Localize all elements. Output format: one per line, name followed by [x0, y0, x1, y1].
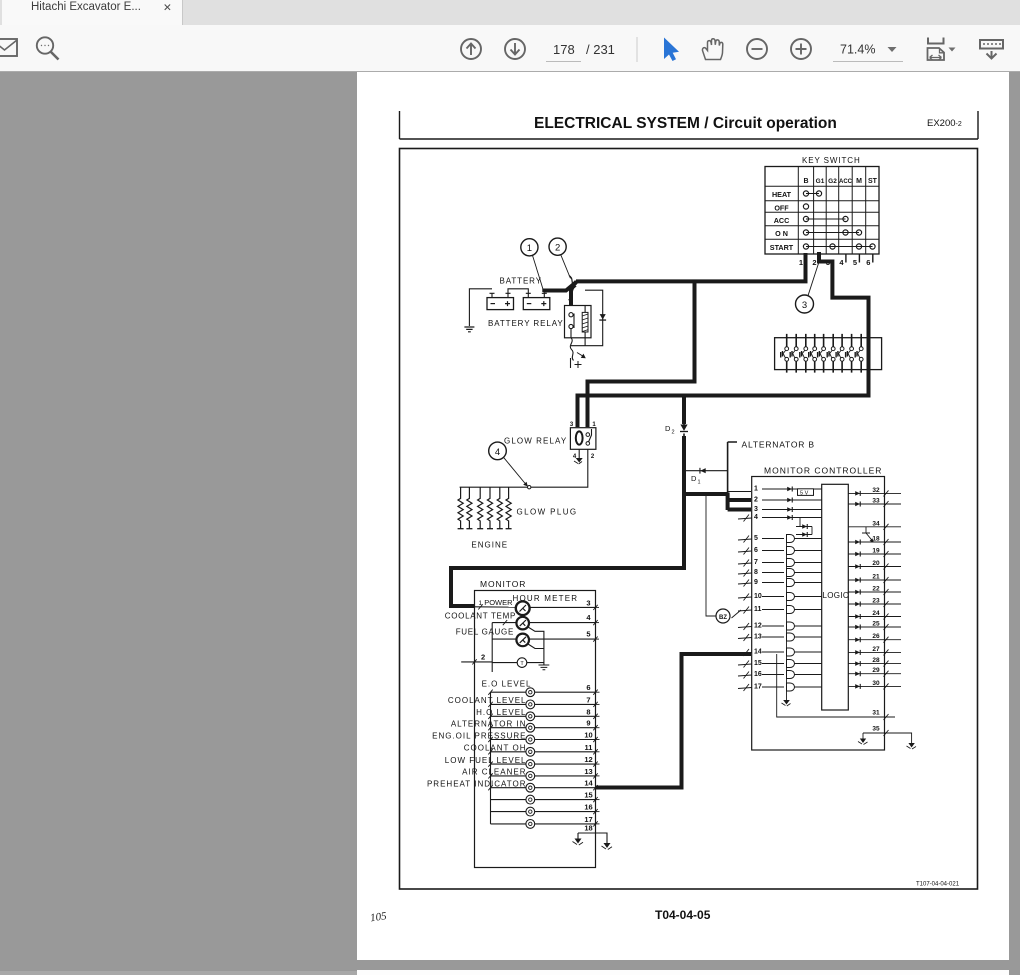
- svg-text:19: 19: [872, 548, 880, 555]
- svg-text:17: 17: [754, 684, 762, 691]
- svg-text:/ 231: / 231: [586, 42, 615, 57]
- svg-text:3: 3: [586, 598, 590, 607]
- svg-text:2: 2: [812, 258, 816, 267]
- svg-text:3: 3: [802, 300, 807, 311]
- svg-text:34: 34: [872, 520, 880, 527]
- svg-text:1 POWER: 1 POWER: [479, 598, 514, 607]
- svg-text:BATTERY: BATTERY: [500, 277, 542, 286]
- svg-text:D: D: [665, 424, 671, 433]
- svg-text:ST: ST: [868, 178, 878, 185]
- svg-text:33: 33: [872, 498, 880, 505]
- svg-text:1: 1: [754, 486, 758, 493]
- svg-text:4: 4: [754, 514, 758, 521]
- svg-text:ACC: ACC: [839, 179, 853, 185]
- svg-text:T: T: [520, 661, 524, 667]
- svg-text:18: 18: [872, 536, 880, 543]
- svg-text:LOW FUEL LEVEL: LOW FUEL LEVEL: [445, 756, 527, 765]
- svg-text:G2: G2: [828, 178, 837, 185]
- svg-text:25: 25: [872, 621, 880, 628]
- svg-text:PREHEAT INDICATOR: PREHEAT INDICATOR: [427, 780, 527, 789]
- svg-text:EX200-2: EX200-2: [927, 118, 962, 129]
- svg-text:12: 12: [754, 623, 762, 630]
- svg-text:COOLANT LEVEL: COOLANT LEVEL: [448, 696, 527, 705]
- svg-text:6: 6: [754, 547, 758, 554]
- svg-text:18: 18: [584, 824, 592, 833]
- svg-text:D: D: [691, 474, 697, 483]
- svg-text:START: START: [770, 243, 794, 252]
- svg-text:9: 9: [754, 579, 758, 586]
- svg-text:BATTERY RELAY: BATTERY RELAY: [488, 319, 564, 328]
- svg-text:T107-04-04-021: T107-04-04-021: [916, 882, 960, 888]
- svg-text:ALTERNATOR B: ALTERNATOR B: [742, 440, 815, 450]
- svg-text:7: 7: [754, 559, 758, 566]
- svg-text:24: 24: [872, 610, 880, 617]
- svg-text:8: 8: [754, 569, 758, 576]
- svg-text:16: 16: [584, 803, 592, 812]
- svg-text:O N: O N: [775, 229, 788, 238]
- svg-text:1: 1: [527, 243, 532, 254]
- svg-text:10: 10: [584, 731, 592, 740]
- svg-text:14: 14: [584, 779, 593, 788]
- svg-text:MONITOR: MONITOR: [480, 579, 526, 589]
- svg-text:6: 6: [586, 683, 590, 692]
- svg-text:OFF: OFF: [774, 204, 789, 213]
- svg-text:ENGINE: ENGINE: [471, 541, 508, 550]
- svg-text:6: 6: [866, 258, 870, 267]
- svg-text:ACC: ACC: [774, 216, 790, 225]
- svg-text:15: 15: [584, 791, 592, 800]
- svg-text:ELECTRICAL SYSTEM / Circuit op: ELECTRICAL SYSTEM / Circuit operation: [534, 115, 837, 132]
- svg-text:FUEL GAUGE: FUEL GAUGE: [456, 628, 514, 637]
- svg-text:27: 27: [872, 646, 880, 653]
- svg-text:4: 4: [573, 454, 577, 460]
- svg-text:BZ: BZ: [719, 615, 727, 621]
- svg-text:11: 11: [754, 606, 762, 613]
- svg-text:ENG.OIL PRESSURE: ENG.OIL PRESSURE: [432, 731, 526, 740]
- svg-text:M: M: [856, 178, 862, 185]
- svg-text:AIR CLEANER: AIR CLEANER: [462, 768, 526, 777]
- svg-text:1: 1: [799, 258, 803, 267]
- svg-text:4: 4: [839, 258, 844, 267]
- svg-text:22: 22: [872, 586, 880, 593]
- svg-text:E.O LEVEL: E.O LEVEL: [482, 680, 532, 689]
- svg-text:28: 28: [872, 657, 880, 664]
- svg-text:29: 29: [872, 667, 880, 674]
- svg-text:HEAT: HEAT: [772, 190, 792, 199]
- svg-text:2: 2: [754, 497, 758, 504]
- svg-text:21: 21: [872, 574, 880, 581]
- svg-text:KEY SWITCH: KEY SWITCH: [802, 156, 861, 165]
- svg-text:4: 4: [495, 447, 500, 458]
- svg-text:26: 26: [872, 633, 880, 640]
- svg-text:13: 13: [584, 767, 592, 776]
- svg-text:COOLANT TEMP: COOLANT TEMP: [445, 612, 516, 621]
- svg-text:32: 32: [872, 487, 880, 494]
- svg-text:5: 5: [586, 630, 590, 639]
- svg-text:G1: G1: [816, 178, 825, 185]
- svg-text:10: 10: [754, 593, 762, 600]
- svg-text:2: 2: [672, 430, 675, 436]
- svg-text:3: 3: [754, 506, 758, 513]
- svg-text:GLOW PLUG: GLOW PLUG: [517, 508, 578, 517]
- svg-text:5: 5: [853, 258, 857, 267]
- svg-text:15: 15: [754, 660, 762, 667]
- svg-text:13: 13: [754, 634, 762, 641]
- svg-text:ALTERNATOR IN: ALTERNATOR IN: [451, 720, 527, 729]
- svg-text:12: 12: [584, 755, 592, 764]
- svg-text:7: 7: [586, 695, 590, 704]
- svg-text:105: 105: [369, 910, 388, 924]
- svg-text:2: 2: [591, 454, 595, 460]
- svg-text:14: 14: [754, 649, 762, 656]
- svg-text:71.4%: 71.4%: [840, 43, 875, 57]
- svg-text:GLOW RELAY: GLOW RELAY: [504, 437, 567, 446]
- svg-text:11: 11: [585, 743, 593, 752]
- svg-text:9: 9: [586, 719, 590, 728]
- svg-text:B: B: [803, 178, 808, 185]
- svg-text:1: 1: [698, 480, 701, 486]
- svg-text:8: 8: [586, 707, 590, 716]
- svg-text:35: 35: [872, 726, 880, 733]
- svg-text:COOLANT OH: COOLANT OH: [464, 744, 527, 753]
- svg-text:4: 4: [586, 613, 591, 622]
- svg-text:LOGIC: LOGIC: [823, 591, 849, 600]
- svg-text:178: 178: [553, 42, 575, 57]
- svg-text:23: 23: [872, 598, 880, 605]
- svg-text:2: 2: [555, 242, 560, 253]
- svg-text:30: 30: [872, 680, 880, 687]
- svg-text:T04-04-05: T04-04-05: [655, 908, 711, 922]
- svg-text:H.O LEVEL: H.O LEVEL: [476, 708, 526, 717]
- svg-text:5: 5: [754, 535, 758, 542]
- svg-text:20: 20: [872, 560, 880, 567]
- svg-text:31: 31: [872, 710, 880, 717]
- svg-text:16: 16: [754, 671, 762, 678]
- svg-text:5 V: 5 V: [800, 490, 809, 496]
- svg-text:MONITOR CONTROLLER: MONITOR CONTROLLER: [764, 466, 882, 476]
- svg-text:2: 2: [481, 653, 485, 662]
